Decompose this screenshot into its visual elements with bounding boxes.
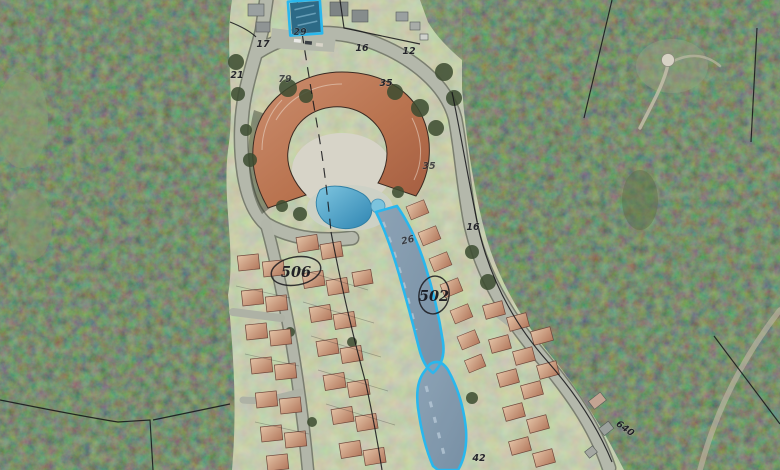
parcel-label-42: 42 [471,453,486,464]
parcel-label-35b: 35 [422,161,436,172]
parcel-label-12: 12 [402,46,416,57]
road-label-16-top: 16 [355,43,369,54]
aerial-map-canvas[interactable]: 21 17 79 29 16 12 35 35 16 26 506 502 42… [0,0,780,470]
forest-hut [662,54,675,67]
parcel-label-35: 35 [379,78,393,89]
parcel-label-506: 506 [281,264,311,281]
road-label-16-right: 16 [466,222,480,233]
parcel-label-21: 21 [230,70,243,81]
parcel-label-79: 79 [278,74,292,85]
parcel-label-502: 502 [419,288,449,305]
map-graphics: 21 17 79 29 16 12 35 35 16 26 506 502 42… [0,0,780,470]
parcel-label-17: 17 [256,39,270,50]
parcel-label-29: 29 [293,27,307,38]
